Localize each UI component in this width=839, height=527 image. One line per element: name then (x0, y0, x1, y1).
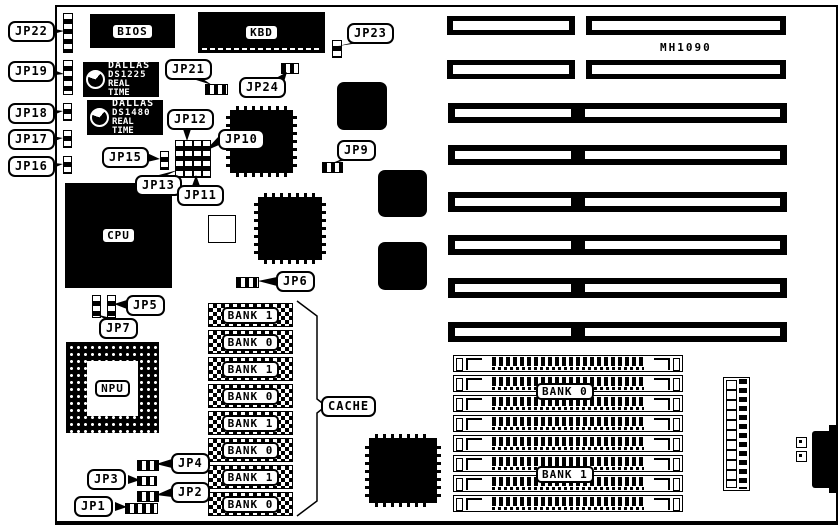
slot-opening (455, 151, 571, 159)
jumper-block-jp9 (322, 162, 343, 173)
dallas-rtc-chip-1: DALLAS DS1225 REAL TIME (83, 62, 159, 97)
callout-jp16: JP16 (8, 156, 55, 177)
jumper-block-jp17 (63, 130, 72, 148)
callout-jp17: JP17 (8, 129, 55, 150)
isa-slot-6 (448, 235, 787, 255)
plcc-chip-3 (378, 242, 427, 290)
simm-socket-4 (453, 415, 683, 432)
cache-bank-label: BANK 0 (222, 388, 280, 405)
callout-jp23: JP23 (347, 23, 394, 44)
small-socket (208, 215, 236, 243)
cache-bank-label: BANK 0 (222, 442, 280, 459)
slot-opening (585, 328, 780, 336)
jumper-block-jp18 (63, 103, 72, 121)
keyboard-controller-chip: KBD (198, 12, 325, 53)
jumper-block-jp5 (107, 295, 116, 318)
cache-chip-7: BANK 1 (208, 465, 293, 489)
qfp-chip-bottom (369, 438, 437, 503)
callout-jp22: JP22 (8, 21, 55, 42)
bios-chip-label: BIOS (111, 23, 154, 40)
cache-chip-6: BANK 0 (208, 438, 293, 462)
slot-opening (453, 21, 569, 30)
cache-bank-label: BANK 0 (222, 496, 280, 513)
cache-bank-label: BANK 1 (222, 307, 280, 324)
jumper-block-jp3 (137, 476, 157, 486)
slot-opening (585, 151, 780, 159)
cache-bank-label: BANK 1 (222, 415, 280, 432)
callout-cache: CACHE (321, 396, 376, 417)
kbd-socket-pins (202, 48, 321, 50)
cpu-chip: CPU (65, 183, 172, 288)
cache-bank-label: BANK 1 (222, 361, 280, 378)
simm-socket-5 (453, 435, 683, 452)
callout-jp21: JP21 (165, 59, 212, 80)
slot-opening (592, 21, 780, 30)
cache-bank-label: BANK 0 (222, 334, 280, 351)
slot-opening (455, 109, 571, 117)
board-outline (55, 5, 838, 525)
cache-bank-label: BANK 1 (222, 469, 280, 486)
callout-jp4: JP4 (171, 453, 210, 474)
callout-jp6: JP6 (276, 271, 315, 292)
power-connector (723, 377, 750, 491)
isa-slot-2-long (586, 60, 786, 79)
callout-jp18: JP18 (8, 103, 55, 124)
cache-chip-2: BANK 0 (208, 330, 293, 354)
callout-jp2: JP2 (171, 482, 210, 503)
slot-opening (585, 109, 780, 117)
slot-opening (453, 65, 569, 74)
memory-bank1-label: BANK 1 (536, 466, 594, 483)
keyboard-connector-pin (796, 437, 807, 448)
jumper-block-jp19 (63, 60, 73, 95)
keyboard-connector-pin (796, 451, 807, 462)
clock-icon (90, 108, 109, 127)
slot-opening (455, 198, 571, 206)
npu-socket-center: NPU (87, 361, 138, 416)
jumper-block-jp12 (184, 140, 193, 178)
simm-socket-1 (453, 355, 683, 372)
callout-jp13: JP13 (135, 175, 182, 196)
jumper-block-jp15 (160, 151, 169, 170)
npu-socket: NPU (66, 342, 159, 433)
cache-chip-3: BANK 1 (208, 357, 293, 381)
dallas-chip-text: DALLAS DS1480 REAL TIME (112, 99, 160, 136)
isa-slot-1-long (586, 16, 786, 35)
board-model-label: MH1090 (660, 41, 712, 54)
dallas-type: REAL TIME (108, 80, 156, 98)
jumper-block-jp10 (202, 140, 211, 178)
power-connector-tabs (739, 379, 747, 489)
jumper-block-jp21 (205, 84, 228, 95)
npu-label: NPU (95, 380, 130, 397)
callout-jp9: JP9 (337, 140, 376, 161)
plcc-chip-1 (337, 82, 387, 130)
slot-opening (455, 284, 571, 292)
power-connector-pins (726, 380, 737, 488)
kbd-chip-label: KBD (244, 24, 279, 41)
callout-jp5: JP5 (126, 295, 165, 316)
dallas-type: REAL TIME (112, 118, 160, 136)
callout-jp10: JP10 (218, 129, 265, 150)
jumper-block-jp13 (175, 140, 184, 178)
cache-chip-1: BANK 1 (208, 303, 293, 327)
jumper-block-jp7 (92, 295, 101, 318)
slot-opening (455, 241, 571, 249)
isa-slot-3 (448, 103, 787, 123)
isa-slot-8 (448, 322, 787, 342)
slot-opening (455, 328, 571, 336)
callout-jp11: JP11 (177, 185, 224, 206)
callout-jp15: JP15 (102, 147, 149, 168)
callout-jp3: JP3 (87, 469, 126, 490)
isa-slot-5 (448, 192, 787, 212)
isa-slot-4 (448, 145, 787, 165)
jumper-block-jp6 (236, 277, 259, 288)
slot-opening (585, 198, 780, 206)
jumper-block-jp23 (332, 40, 342, 58)
jumper-block-jp22 (63, 13, 73, 53)
jumper-block-jp1 (125, 503, 158, 514)
jumper-block-jp11 (193, 140, 202, 178)
callout-jp1: JP1 (74, 496, 113, 517)
cache-chip-4: BANK 0 (208, 384, 293, 408)
memory-bank0-label: BANK 0 (536, 383, 594, 400)
isa-slot-7 (448, 278, 787, 298)
callout-jp7: JP7 (99, 318, 138, 339)
isa-slot-2-short (447, 60, 575, 79)
callout-jp12: JP12 (167, 109, 214, 130)
jumper-block-jp4 (137, 460, 159, 471)
jumper-block-jp16 (63, 156, 72, 174)
cache-chip-8: BANK 0 (208, 492, 293, 516)
slot-opening (592, 65, 780, 74)
cache-chip-5: BANK 1 (208, 411, 293, 435)
simm-socket-8 (453, 495, 683, 512)
clock-icon (86, 70, 105, 89)
slot-opening (585, 284, 780, 292)
bios-chip: BIOS (90, 14, 175, 48)
keyboard-din-connector-edge (829, 425, 838, 493)
plcc-chip-2 (378, 170, 427, 217)
isa-slot-1-short (447, 16, 575, 35)
jumper-block-jp24 (281, 63, 299, 74)
cpu-label: CPU (101, 227, 136, 244)
callout-jp19: JP19 (8, 61, 55, 82)
dallas-chip-text: DALLAS DS1225 REAL TIME (108, 61, 156, 98)
callout-jp24: JP24 (239, 77, 286, 98)
qfp-chip-middle (258, 197, 322, 260)
motherboard-diagram: MH1090 BIOS KBD DALLAS DS1225 REAL TIME … (0, 0, 839, 527)
jumper-block-jp2 (137, 491, 159, 502)
slot-opening (585, 241, 780, 249)
dallas-rtc-chip-2: DALLAS DS1480 REAL TIME (87, 100, 163, 135)
